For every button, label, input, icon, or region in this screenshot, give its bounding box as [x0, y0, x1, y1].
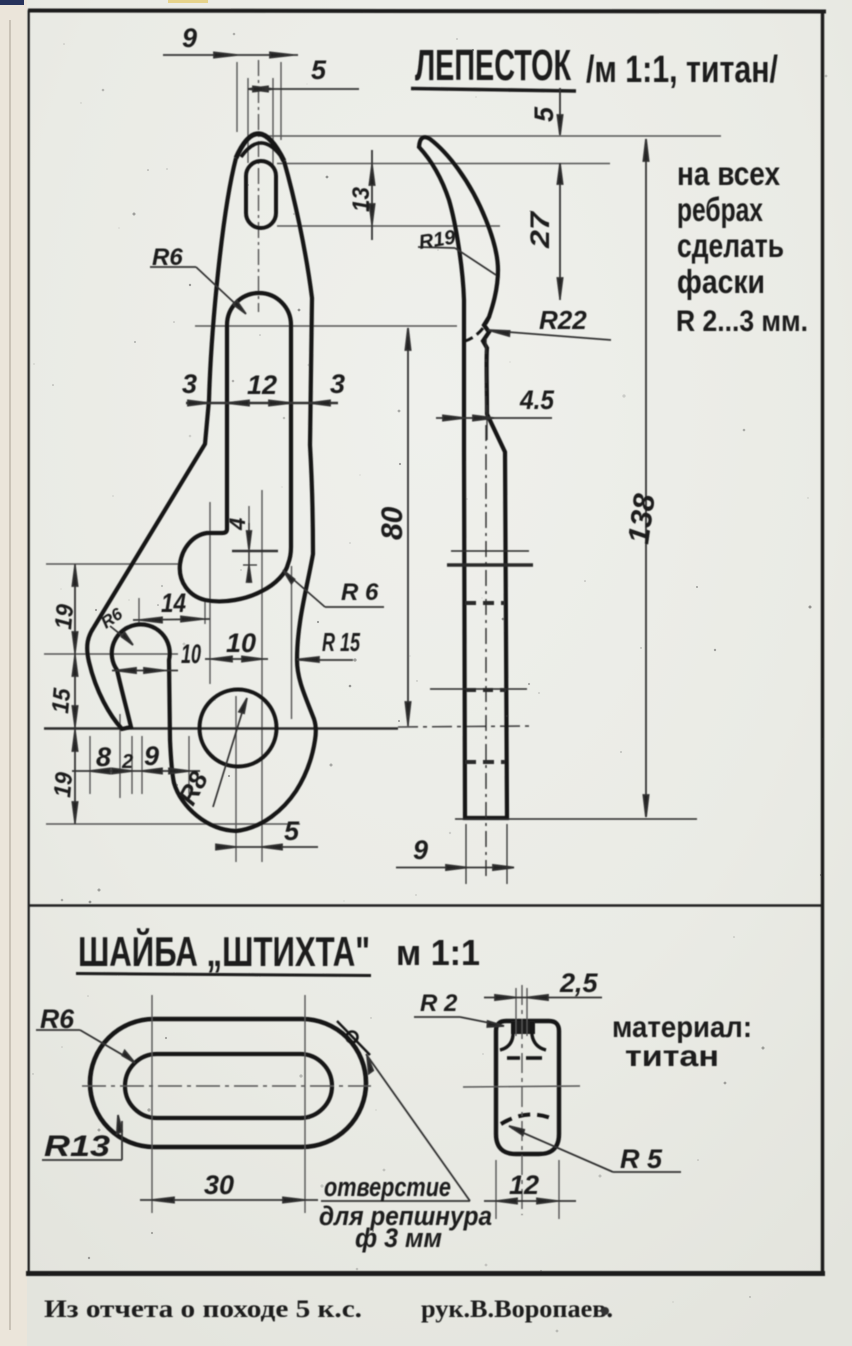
svg-text:2: 2	[121, 751, 133, 773]
svg-text:R 6: R 6	[341, 579, 379, 606]
svg-text:Из отчета о походе 5 к.с.: Из отчета о походе 5 к.с.	[44, 1296, 362, 1323]
svg-text:8: 8	[96, 742, 111, 772]
svg-text:R6: R6	[152, 244, 183, 271]
svg-text:4.5: 4.5	[519, 385, 555, 415]
svg-text:м 1:1: м 1:1	[396, 932, 480, 973]
svg-text:R 2...3 мм.: R 2...3 мм.	[676, 305, 808, 338]
svg-text:ф 3 мм: ф 3 мм	[355, 1223, 442, 1253]
svg-text:30: 30	[204, 1170, 234, 1200]
svg-text:138: 138	[622, 492, 662, 546]
svg-text:фаски: фаски	[677, 263, 765, 300]
svg-text:R 15: R 15	[322, 627, 360, 657]
svg-text:R 5: R 5	[620, 1144, 663, 1174]
svg-text:R 2: R 2	[420, 990, 458, 1017]
svg-text:13: 13	[348, 186, 375, 212]
svg-text:2,5: 2,5	[559, 968, 599, 998]
svg-text:5: 5	[529, 106, 559, 122]
svg-text:сделать: сделать	[677, 227, 784, 264]
svg-text:ШАЙБА „ШТИХТА": ШАЙБА „ШТИХТА"	[78, 927, 370, 975]
svg-text:5: 5	[311, 55, 327, 85]
svg-text:R13: R13	[44, 1130, 110, 1163]
svg-text:ребрах: ребрах	[677, 191, 763, 228]
svg-text:4: 4	[225, 518, 250, 531]
svg-text:R22: R22	[539, 305, 587, 335]
svg-text:5: 5	[284, 816, 300, 846]
svg-text:27: 27	[525, 210, 555, 250]
svg-text:отверстие: отверстие	[324, 1172, 451, 1202]
svg-text:19: 19	[50, 603, 79, 631]
svg-text:3: 3	[182, 369, 197, 399]
svg-text:рук.В.Воропаев.: рук.В.Воропаев.	[421, 1296, 613, 1323]
svg-text:/м 1:1, титан/: /м 1:1, титан/	[586, 49, 778, 91]
svg-text:9: 9	[182, 23, 197, 53]
svg-text:12: 12	[247, 370, 277, 400]
svg-text:19: 19	[49, 771, 78, 799]
svg-text:9: 9	[144, 741, 159, 771]
svg-text:80: 80	[376, 506, 409, 540]
svg-text:на всех: на всех	[677, 155, 781, 192]
svg-text:3: 3	[330, 369, 345, 399]
svg-text:R6: R6	[40, 1004, 75, 1034]
svg-text:10: 10	[226, 628, 256, 658]
svg-text:15: 15	[47, 687, 76, 715]
svg-text:ЛЕПЕСТОК: ЛЕПЕСТОК	[415, 41, 571, 90]
svg-text:титан: титан	[625, 1040, 719, 1073]
svg-text:9: 9	[413, 835, 428, 865]
svg-text:14: 14	[161, 588, 186, 618]
svg-text:12: 12	[509, 1170, 539, 1200]
